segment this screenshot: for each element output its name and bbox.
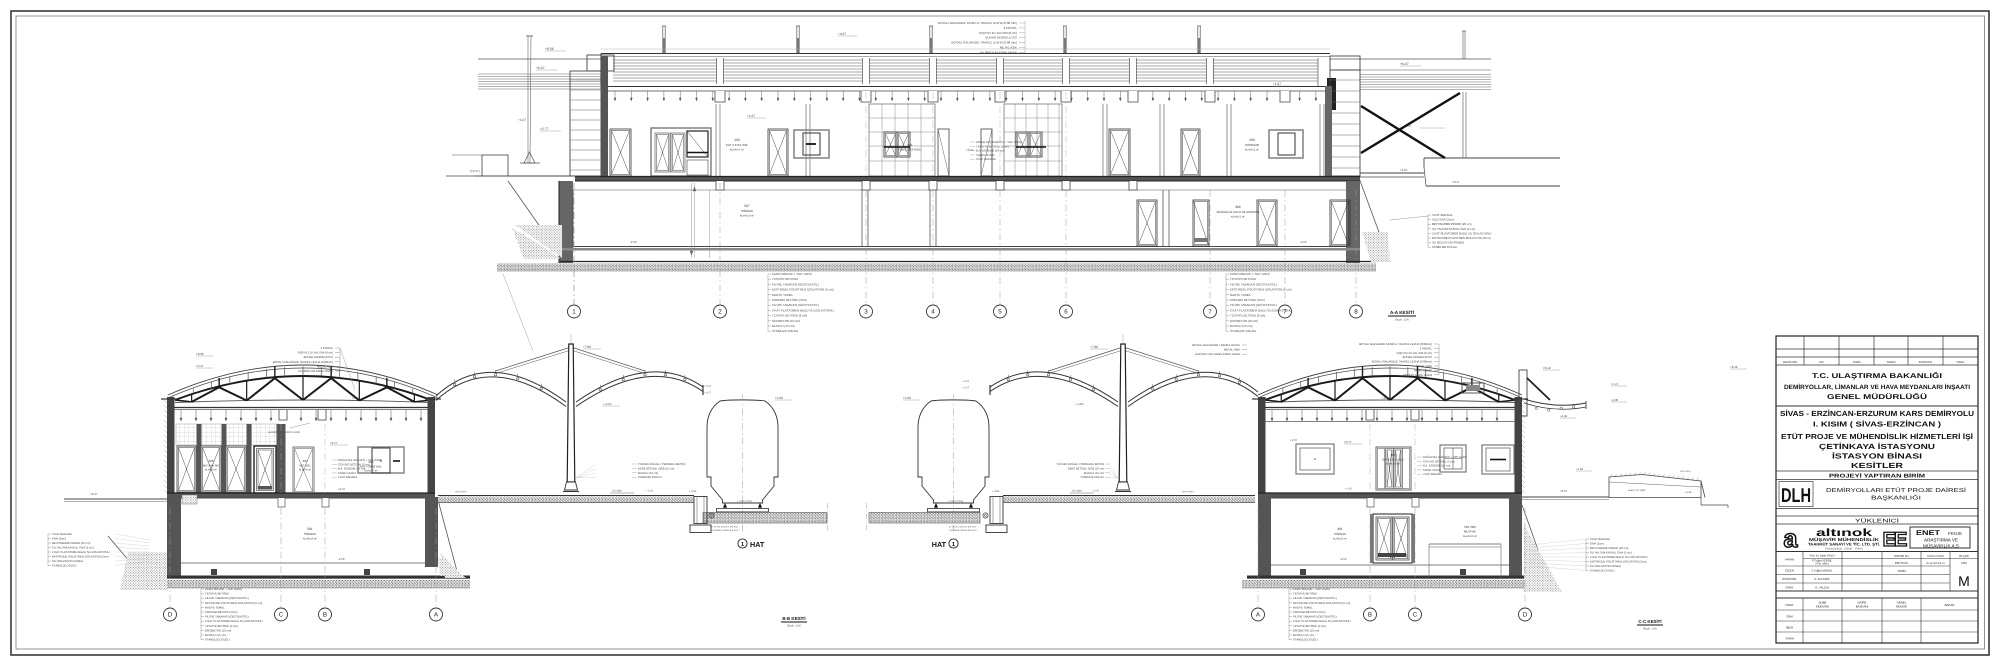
svg-text:C-C KESİTİ: C-C KESİTİ xyxy=(1638,619,1661,624)
svg-text:C: C xyxy=(1413,612,1418,619)
svg-text:ALAN:25 m²: ALAN:25 m² xyxy=(1333,538,1347,541)
svg-text:GROBETON (10 cm): GROBETON (10 cm) xyxy=(1293,628,1319,632)
svg-text:I. KISIM ( SİVAS-ERZİNCAN ): I. KISIM ( SİVAS-ERZİNCAN ) xyxy=(1813,420,1942,429)
svg-text:ALAN:57 m²: ALAN:57 m² xyxy=(364,470,378,473)
svg-text:FİLTRE TABAKASI (GEOTEKSTİL): FİLTRE TABAKASI (GEOTEKSTİL) xyxy=(772,303,819,307)
svg-text:7: 7 xyxy=(1208,309,1212,316)
svg-text:+1.67: +1.67 xyxy=(747,114,755,118)
svg-text:GROBETON (10 cm): GROBETON (10 cm) xyxy=(205,628,231,632)
svg-text:HAT: HAT xyxy=(750,540,765,549)
svg-text:M: M xyxy=(1958,573,1970,589)
svg-text:+ 0.86: + 0.86 xyxy=(992,490,1000,493)
svg-text:ÖLÇÜK: ÖLÇÜK xyxy=(1959,554,1969,558)
svg-text:T.C. ULAŞTIRMA BAKANLIĞI: T.C. ULAŞTIRMA BAKANLIĞI xyxy=(1812,371,1942,380)
svg-text:203: 203 xyxy=(734,138,740,142)
svg-text:%2 eğim: %2 eğim xyxy=(612,490,622,493)
svg-text:TESVİYE BETONU (5 cm): TESVİYE BETONU (5 cm) xyxy=(338,462,370,466)
svg-text:501: 501 xyxy=(307,527,313,531)
svg-text:TAVAN SIVASI: TAVAN SIVASI xyxy=(338,472,356,475)
svg-text:+7.80: +7.80 xyxy=(1090,345,1098,349)
svg-text:208: 208 xyxy=(1249,138,1255,142)
svg-text:YAPAN: YAPAN xyxy=(1785,558,1795,562)
svg-text:ASA PARA: ASA PARA xyxy=(1680,470,1691,473)
svg-text:STABİLİZE DOLGU: STABİLİZE DOLGU xyxy=(1080,475,1104,479)
svg-text:ANA PARA: ANA PARA xyxy=(1182,491,1194,494)
svg-text:METAL AŞIK: METAL AŞIK xyxy=(1224,348,1240,352)
svg-text:47 2KTAL BAZALT BALAST: 47 2KTAL BAZALT BALAST xyxy=(711,526,739,529)
svg-text:EKSTRÜDE POLİSTREN İZOLASYON: EKSTRÜDE POLİSTREN İZOLASYON (5cm) xyxy=(52,555,109,559)
svg-text:+0.67: +0.67 xyxy=(1560,489,1568,493)
svg-text:GİRİŞ CİK2 HOLÜ: GİRİŞ CİK2 HOLÜ xyxy=(1382,458,1404,462)
svg-text:BETONARME PERDE (25 cm): BETONARME PERDE (25 cm) xyxy=(1432,222,1472,226)
svg-text:+8.12: +8.12 xyxy=(1543,366,1551,370)
svg-text:PAFTA No: PAFTA No xyxy=(1895,561,1909,565)
svg-text:2 KAT PLASTOMER BAZLI SU İZOL: 2 KAT PLASTOMER BAZLI SU İZOLASYONU xyxy=(52,550,110,554)
svg-text:206: 206 xyxy=(208,459,213,463)
svg-text:+4.80: +4.80 xyxy=(903,396,911,400)
svg-text:E. ALTINOK: E. ALTINOK xyxy=(1814,577,1829,581)
svg-text:204: 204 xyxy=(1390,453,1395,457)
svg-text:+7.80: +7.80 xyxy=(583,345,591,349)
svg-text:+0.47: +0.47 xyxy=(966,148,974,152)
svg-text:EKSTRÜDE POLİSTREN İZOLASYON (: EKSTRÜDE POLİSTREN İZOLASYON (5cm) xyxy=(1432,236,1491,240)
svg-text:BOYALI GALVANİZE TRAPEZ LEVHA: BOYALI GALVANİZE TRAPEZ LEVHA (0.88mm) xyxy=(273,360,333,364)
svg-text:DERZ BETONU SIĞB (10 cm): DERZ BETONU SIĞB (10 cm) xyxy=(638,466,674,470)
svg-text:FİLTRE TABAKASI (GEOTEKSTİL): FİLTRE TABAKASI (GEOTEKSTİL) xyxy=(1230,303,1277,307)
svg-text:WC HOL: WC HOL xyxy=(299,464,311,468)
svg-text:KARO MOZAİK + YAP. HARÇ: KARO MOZAİK + YAP. HARÇ xyxy=(205,587,242,591)
svg-text:507: 507 xyxy=(744,204,750,208)
svg-text:RADYE TEMEL: RADYE TEMEL xyxy=(205,605,225,609)
svg-text:KARO MOZAİK + YAP. HARÇ: KARO MOZAİK + YAP. HARÇ xyxy=(1293,587,1330,591)
svg-text:BOYALI GALVANİZE TRAPEZ LEVHA: BOYALI GALVANİZE TRAPEZ LEVHA xyxy=(1192,343,1240,347)
svg-text:+6.47: +6.47 xyxy=(536,66,545,70)
svg-text:204: 204 xyxy=(302,459,307,463)
svg-text:MUTFAK: MUTFAK xyxy=(1464,530,1476,534)
svg-text:+4.67: +4.67 xyxy=(352,396,360,400)
svg-text:C: C xyxy=(279,612,284,619)
svg-text:ONAY: ONAY xyxy=(1957,360,1965,364)
svg-text:BUHAR DENGELEYİCİ: BUHAR DENGELEYİCİ xyxy=(1403,355,1433,359)
svg-text:TESVİYE BETONU (2 cm): TESVİYE BETONU (2 cm) xyxy=(1230,314,1265,318)
svg-text:BLOKAJ (15 cm): BLOKAJ (15 cm) xyxy=(1230,324,1253,328)
svg-text:+ 0.86: + 0.86 xyxy=(689,490,697,493)
svg-text:+0.47: +0.47 xyxy=(338,487,346,491)
svg-text:DOĞALTAŞ (GRANİT) + YAP. HARÇ: DOĞALTAŞ (GRANİT) + YAP. HARÇ xyxy=(1423,455,1467,459)
svg-text:SIĞINAK: SIĞINAK xyxy=(1334,532,1346,536)
svg-text:+4.67: +4.67 xyxy=(838,32,846,36)
svg-text:TARİH: TARİH xyxy=(1785,637,1794,641)
svg-text:METAL AŞIK: METAL AŞIK xyxy=(1416,364,1432,368)
svg-text:FİLTRE TABAKASI (GEOTEKSTİL): FİLTRE TABAKASI (GEOTEKSTİL) xyxy=(1230,282,1277,286)
svg-text:İŞİM: İŞİM xyxy=(1786,615,1793,619)
svg-text:ALAN:5 m²: ALAN:5 m² xyxy=(299,469,311,472)
svg-text:KORUMA BETONU (5cm): KORUMA BETONU (5cm) xyxy=(205,610,237,614)
svg-text:BETONARME PERDE (20 cm): BETONARME PERDE (20 cm) xyxy=(1590,546,1628,550)
svg-text:TESVİYE BETONU: TESVİYE BETONU xyxy=(1293,592,1317,596)
svg-text:+5.47: +5.47 xyxy=(196,364,204,368)
svg-text:BOYALI GALVANİZE KENETLİ TRAPE: BOYALI GALVANİZE KENETLİ TRAPEZ LEVHA (0… xyxy=(938,21,1017,25)
svg-text:EE: EE xyxy=(1883,529,1907,551)
svg-text:SU İZOLASYON PANELİ: SU İZOLASYON PANELİ xyxy=(1590,564,1621,568)
svg-text:+1.67: +1.67 xyxy=(1273,82,1281,86)
svg-text:3 KAT BADANA: 3 KAT BADANA xyxy=(1432,213,1453,217)
svg-text:ONAY: ONAY xyxy=(1785,586,1793,590)
svg-text:SU İZOLASYON PANELİ: SU İZOLASYON PANELİ xyxy=(52,559,83,563)
svg-text:DEMİRYOLLARI ETÜT PROJE DAİRES: DEMİRYOLLARI ETÜT PROJE DAİRESİ xyxy=(1826,487,1967,494)
svg-text:+5.47: +5.47 xyxy=(1611,382,1619,386)
svg-text:SIVA (2cm): SIVA (2cm) xyxy=(1590,542,1604,546)
svg-text:METAL AŞIK: METAL AŞIK xyxy=(317,364,333,368)
svg-text:+ 5.47: + 5.47 xyxy=(704,385,712,388)
svg-text:+8.36: +8.36 xyxy=(545,47,554,51)
svg-text:BUHAR DENGELEYİCİ: BUHAR DENGELEYİCİ xyxy=(304,355,334,359)
svg-text:D: D xyxy=(168,612,173,619)
svg-text:B: B xyxy=(323,612,327,619)
svg-text:TESVİYE BETONU: TESVİYE BETONU xyxy=(205,592,229,596)
svg-text:PROJEYİ YAPTIRAN BİRİM: PROJEYİ YAPTIRAN BİRİM xyxy=(1829,473,1926,480)
svg-text:TAVAN SIVASI: TAVAN SIVASI xyxy=(1423,469,1441,472)
svg-text:1: 1 xyxy=(572,309,576,316)
svg-text:+ 0.40: + 0.40 xyxy=(646,490,654,493)
svg-text:STABİLİZE DOLGU: STABİLİZE DOLGU xyxy=(1432,245,1457,249)
svg-text:KARO MOZAİK + YAP. HARÇ: KARO MOZAİK + YAP. HARÇ xyxy=(1230,272,1271,276)
svg-text:a: a xyxy=(1784,525,1799,553)
svg-text:-2.50: -2.50 xyxy=(338,557,345,561)
svg-text:Ölçek : 1/50: Ölçek : 1/50 xyxy=(787,624,801,628)
svg-text:GİRİŞ CİK3 HOLÜ: GİRİŞ CİK3 HOLÜ xyxy=(898,148,921,152)
svg-text:asans %7 eğim: asans %7 eğim xyxy=(1628,489,1646,492)
svg-text:GENEL MÜDÜRLÜĞÜ: GENEL MÜDÜRLÜĞÜ xyxy=(1827,392,1927,401)
svg-text:Ticaret Sicil No : 222441: Ticaret Sicil No : 222441 - 170001 xyxy=(1825,548,1863,551)
svg-text:-2.50: -2.50 xyxy=(1300,240,1307,244)
svg-text:DEMİRYOLLAR, LİMANLAR VE HAVA: DEMİRYOLLAR, LİMANLAR VE HAVA MEYDANLARI… xyxy=(1784,383,1970,391)
svg-text:Prof. Dr. Alper ÜNLÜ: Prof. Dr. Alper ÜNLÜ xyxy=(1810,554,1835,558)
svg-text:FİLTRE TABAKASI (GEOTEKSTİL): FİLTRE TABAKASI (GEOTEKSTİL) xyxy=(205,615,249,619)
svg-text:MÜDÜRLÜK HOLÜ VE KORİDOR: MÜDÜRLÜK HOLÜ VE KORİDOR xyxy=(1217,210,1260,214)
svg-text:B.A. DÖŞEME (16 cm): B.A. DÖŞEME (16 cm) xyxy=(338,467,365,471)
svg-text:ALAN:35 m²: ALAN:35 m² xyxy=(1463,535,1477,538)
svg-text:STABİLİZE DOLGU: STABİLİZE DOLGU xyxy=(52,564,77,568)
svg-text:ONAY: ONAY xyxy=(1785,603,1793,607)
svg-text:+2.77: +2.77 xyxy=(1344,440,1352,444)
svg-text:FİLTRE TABAKASI (GEOTEKSTİL): FİLTRE TABAKASI (GEOTEKSTİL) xyxy=(205,596,249,600)
svg-text:KESİTLER: KESİTLER xyxy=(1851,461,1904,470)
svg-text:3 KAT BADANA: 3 KAT BADANA xyxy=(338,476,357,479)
svg-text:DLH: DLH xyxy=(1781,485,1811,507)
svg-text:HAT: HAT xyxy=(932,540,947,549)
svg-text:+1.92: +1.92 xyxy=(1576,467,1584,471)
svg-text:TAŞIYICI 2U YALITIM (8 cm): TAŞIYICI 2U YALITIM (8 cm) xyxy=(978,31,1017,35)
svg-text:G. YALÇIN: G. YALÇIN xyxy=(1815,586,1829,590)
svg-text:+2.77: +2.77 xyxy=(540,127,549,131)
svg-text:TESVİYE BETONU: TESVİYE BETONU xyxy=(1230,277,1256,281)
svg-text:METAL AŞIK: METAL AŞIK xyxy=(1000,46,1017,50)
svg-text:İMZA: İMZA xyxy=(1786,626,1793,630)
svg-text:5: 5 xyxy=(998,309,1002,316)
svg-text:TESVİYE BETONU (2 cm): TESVİYE BETONU (2 cm) xyxy=(205,624,238,628)
svg-text:YÜKLENİCİ: YÜKLENİCİ xyxy=(1855,518,1899,525)
svg-text:İSTASYON BİNASI: İSTASYON BİNASI xyxy=(1832,452,1922,461)
svg-text:+1.67: +1.67 xyxy=(1290,438,1298,442)
svg-text:KORUMA BETONU (5cm): KORUMA BETONU (5cm) xyxy=(772,298,807,302)
svg-text:MÜDÜRÜ: MÜDÜRÜ xyxy=(1816,605,1829,609)
svg-text:304 /303: 304 /303 xyxy=(1464,525,1476,529)
svg-text:B: B xyxy=(380,459,382,463)
svg-text:+ 6.27: + 6.27 xyxy=(962,387,970,390)
svg-text:ALAN:103 m²: ALAN:103 m² xyxy=(1386,463,1401,466)
svg-text:STABİLİZE DOLGU: STABİLİZE DOLGU xyxy=(205,638,230,642)
svg-text:DERZ BETONU SIĞB (10 cm): DERZ BETONU SIĞB (10 cm) xyxy=(1068,466,1104,470)
svg-text:3 KAT BADANA: 3 KAT BADANA xyxy=(52,532,72,536)
svg-text:YIKANMIŞ TABAN BALASTI: YIKANMIŞ TABAN BALASTI xyxy=(949,529,977,532)
svg-text:ALÇI SIVA (2cm): ALÇI SIVA (2cm) xyxy=(1432,218,1454,222)
svg-text:STABİLİZE DOLGU: STABİLİZE DOLGU xyxy=(1230,329,1256,333)
svg-text:TESVİYE BETONU (5 cm): TESVİYE BETONU (5 cm) xyxy=(1423,459,1455,463)
svg-text:KORUMA BETONU (5cm): KORUMA BETONU (5cm) xyxy=(1230,298,1265,302)
svg-text:BLOKAJ (15 cm): BLOKAJ (15 cm) xyxy=(1293,633,1314,637)
svg-text:ALEVSIZI VM LAMEL ASMA TAVAN: ALEVSIZI VM LAMEL ASMA TAVAN xyxy=(1195,352,1240,356)
svg-text:SİVAS - ERZİNCAN-ERZURUM KARS: SİVAS - ERZİNCAN-ERZURUM KARS DEMİRYOLU xyxy=(1780,409,1974,418)
svg-text:4: 4 xyxy=(931,309,935,316)
svg-text:2 KAT PLASTOMER BAZLI SU İZOL: 2 KAT PLASTOMER BAZLI SU İZOLASYONU xyxy=(205,619,263,623)
svg-text:+ 0.40: + 0.40 xyxy=(1092,490,1100,493)
svg-text:± 0.00 (Y.Z.K): ± 0.00 (Y.Z.K) xyxy=(948,500,963,503)
svg-text:+8.26: +8.26 xyxy=(196,352,204,356)
svg-text:MÜŞAVİR MÜHENDİSLİK: MÜŞAVİR MÜHENDİSLİK xyxy=(1809,537,1879,542)
svg-text:KORUMA BETONU (5cm): KORUMA BETONU (5cm) xyxy=(1293,610,1325,614)
svg-text:SU YALITIM KATKILI SIVA (2 cm: SU YALITIM KATKILI SIVA (2 cm) xyxy=(52,546,94,550)
svg-text:2 PROFİL: 2 PROFİL xyxy=(321,346,334,350)
svg-text:(YÜK. MİM.): (YÜK. MİM.) xyxy=(1815,562,1829,566)
svg-text:-2.50: -2.50 xyxy=(1340,557,1347,561)
svg-text:STABİLİZE DOLGU: STABİLİZE DOLGU xyxy=(1590,569,1615,573)
svg-text:TAŞIYICI 2U YALITIM (8 cm): TAŞIYICI 2U YALITIM (8 cm) xyxy=(297,351,333,355)
svg-text:+4.67: +4.67 xyxy=(1382,396,1390,400)
svg-text:BUHAR DENGELEYİCİ: BUHAR DENGELEYİCİ xyxy=(985,36,1017,40)
svg-text:FİLTRE TABAKASI (GEOTEKSTİL): FİLTRE TABAKASI (GEOTEKSTİL) xyxy=(772,282,819,286)
svg-text:ALÜMİNYUM ASMA TAVAN: ALÜMİNYUM ASMA TAVAN xyxy=(980,50,1017,54)
svg-text:ALAN:52 m²: ALAN:52 m² xyxy=(1231,216,1245,219)
svg-text:3 KAT BADANA: 3 KAT BADANA xyxy=(976,157,996,161)
svg-text:+ 4.810: + 4.810 xyxy=(1075,403,1084,406)
svg-text:ALAN:57 m²: ALAN:57 m² xyxy=(730,149,744,152)
svg-text:SU İZOLASYON PANELİ: SU İZOLASYON PANELİ xyxy=(1432,241,1464,245)
svg-text:60-Çİ-İST-KS-01: 60-Çİ-İST-KS-01 xyxy=(1926,561,1945,565)
svg-text:F.Tuğba VERDİL: F.Tuğba VERDİL xyxy=(1812,569,1833,573)
svg-text:GROBETON (10 cm): GROBETON (10 cm) xyxy=(1230,319,1258,323)
svg-text:TESVİYE BETONU: TESVİYE BETONU xyxy=(772,277,798,281)
svg-text:BAKAN: BAKAN xyxy=(1945,603,1955,607)
svg-text:+8.12: +8.12 xyxy=(1730,365,1738,369)
svg-text:301: 301 xyxy=(1337,527,1343,531)
svg-text:ÇETİNKAYA İSTASYONU: ÇETİNKAYA İSTASYONU xyxy=(1819,442,1935,451)
svg-text:MÜDÜR: MÜDÜR xyxy=(1896,605,1907,609)
svg-text:TAAHHÜT SANAYİ VE TİC. LTD. ŞT: TAAHHÜT SANAYİ VE TİC. LTD. ŞTİ. xyxy=(1808,542,1880,547)
svg-text:TARİH: TARİH xyxy=(1897,569,1905,573)
svg-text:2009/LD1/0520: 2009/LD1/0520 xyxy=(1927,555,1945,558)
svg-text:+4.72: +4.72 xyxy=(1404,124,1412,128)
svg-text:STABİLİZE DOLGU: STABİLİZE DOLGU xyxy=(1293,638,1318,642)
svg-text:BLOKAJ (15 cm): BLOKAJ (15 cm) xyxy=(638,472,658,475)
svg-text:KARO MOZAİK + YAP. HARÇ: KARO MOZAİK + YAP. HARÇ xyxy=(772,272,813,276)
svg-text:EKSTRÜDE POLİSTREN İZOLASYON: EKSTRÜDE POLİSTREN İZOLASYON (5 cm) xyxy=(772,288,834,292)
svg-text:B: B xyxy=(1314,457,1316,461)
svg-text:ALAN:25 m²: ALAN:25 m² xyxy=(303,538,317,541)
svg-text:BOYALI GALVANİZE TRAPEZ LEVHA: BOYALI GALVANİZE TRAPEZ LEVHA (0.88 mm) xyxy=(952,41,1017,45)
svg-text:RADYE TEMEL: RADYE TEMEL xyxy=(772,293,793,297)
svg-text:KORİDOR: KORİDOR xyxy=(1245,143,1260,147)
svg-text:FİLTRE TABAKASI (GEOTEKSTİL): FİLTRE TABAKASI (GEOTEKSTİL) xyxy=(1293,615,1337,619)
svg-text:RADYE TEMEL: RADYE TEMEL xyxy=(1293,605,1313,609)
svg-text:YAPAN: YAPAN xyxy=(1886,360,1895,364)
svg-text:47 2KTAL BAZALT BALAST: 47 2KTAL BAZALT BALAST xyxy=(949,526,977,529)
svg-text:YÜKSEK DOĞALI / PERDAHLI BETON: YÜKSEK DOĞALI / PERDAHLI BETON xyxy=(638,462,686,466)
svg-text:+0.17: +0.17 xyxy=(90,492,98,496)
svg-text:8: 8 xyxy=(1354,309,1358,316)
svg-text:BAŞKANI: BAŞKANI xyxy=(1856,605,1869,609)
svg-text:ANA PARA: ANA PARA xyxy=(455,491,467,494)
svg-text:+4.49: +4.49 xyxy=(1560,414,1568,418)
svg-text:3: 3 xyxy=(864,309,868,316)
svg-text:+6.47: +6.47 xyxy=(1400,62,1409,66)
svg-text:YÜKSEK DOĞALI / PERDAHLI BETON: YÜKSEK DOĞALI / PERDAHLI BETON xyxy=(1057,462,1105,466)
svg-text:YIKANMIŞ TABAN BALASTI: YIKANMIŞ TABAN BALASTI xyxy=(711,529,739,532)
svg-text:3 KAT BADANA: 3 KAT BADANA xyxy=(1423,473,1442,476)
svg-text:SU YALITIM KATKILI SIVA (2 cm): SU YALITIM KATKILI SIVA (2 cm) xyxy=(1590,551,1632,555)
svg-text:EKSTRÜDE POLİSTREN İZOLASYON: EKSTRÜDE POLİSTREN İZOLASYON (5 cm) xyxy=(1293,601,1350,605)
svg-text:SU YALITIM KATKILI SIVA (2 cm: SU YALITIM KATKILI SIVA (2 cm) xyxy=(1432,227,1475,231)
svg-text:+4.80: +4.80 xyxy=(1611,398,1619,402)
svg-text:2: 2 xyxy=(718,309,722,316)
svg-text:2 KAT PLASTOMER BAZLI SU İZOL: 2 KAT PLASTOMER BAZLI SU İZOLASYONU xyxy=(1432,231,1491,235)
svg-text:TESVİYE BETONU (2 cm): TESVİYE BETONU (2 cm) xyxy=(1293,624,1326,628)
svg-text:BOYALI GALVANİZE TRAPEZ LEVHA: BOYALI GALVANİZE TRAPEZ LEVHA (0.88mm) xyxy=(1372,360,1432,364)
svg-text:201: 201 xyxy=(907,143,912,147)
svg-text:ALAN:55 m²: ALAN:55 m² xyxy=(740,215,754,218)
svg-text:ALÜMİNYUM ASMA TAVAN: ALÜMİNYUM ASMA TAVAN xyxy=(298,369,333,373)
svg-text:2 PROFİL: 2 PROFİL xyxy=(1004,26,1018,30)
svg-text:Ölçek : 1/50: Ölçek : 1/50 xyxy=(1395,318,1409,322)
svg-text:+1.67: +1.67 xyxy=(518,118,526,122)
svg-text:KAT II KITA HOL: KAT II KITA HOL xyxy=(726,143,749,147)
svg-text:+2.48: +2.48 xyxy=(1685,491,1692,494)
svg-text:BETONARME PERDE (25 cm): BETONARME PERDE (25 cm) xyxy=(52,541,90,545)
svg-text:TESVİYE BETONU (2 cm): TESVİYE BETONU (2 cm) xyxy=(772,314,807,318)
svg-text:PROJE No: PROJE No xyxy=(1894,554,1909,558)
svg-text:+1.67: +1.67 xyxy=(1400,168,1408,172)
svg-text:+0.17: +0.17 xyxy=(1452,180,1460,184)
svg-text:ENET: ENET xyxy=(1916,530,1941,537)
svg-text:RADYE TEMEL: RADYE TEMEL xyxy=(1230,293,1251,297)
svg-text:GROBETON (10 cm): GROBETON (10 cm) xyxy=(772,319,800,323)
svg-text:2 KAT PLASTOMER BAZLI SU İZOL: 2 KAT PLASTOMER BAZLI SU İZOLASYONU xyxy=(772,308,834,312)
svg-text:306: 306 xyxy=(1235,205,1241,209)
svg-text:BOYALI GALVANİZE KENETLİ TRAPE: BOYALI GALVANİZE KENETLİ TRAPEZ LEVHA (0… xyxy=(1359,342,1432,346)
svg-text:TAVAN ASKISI: TAVAN ASKISI xyxy=(1414,368,1433,372)
svg-text:2 KAT PLASTOMER BAZLI SU İZOL: 2 KAT PLASTOMER BAZLI SU İZOLASYONU xyxy=(1230,308,1292,312)
svg-text:SIVA (2cm): SIVA (2cm) xyxy=(52,537,66,541)
svg-text:EKSTRÜDE POLİSTREN İZOLASYON: EKSTRÜDE POLİSTREN İZOLASYON (5 cm) xyxy=(1230,288,1292,292)
svg-text:%2 eğim: %2 eğim xyxy=(1072,490,1082,493)
svg-text:STABİLİZE DOLGU: STABİLİZE DOLGU xyxy=(638,475,662,479)
svg-text:PROJE: PROJE xyxy=(1948,531,1962,536)
svg-text:2 KAT PLASTOMER BAZLI SU İZOL: 2 KAT PLASTOMER BAZLI SU İZOLASYONU xyxy=(1590,555,1648,559)
svg-text:D: D xyxy=(1523,612,1528,619)
svg-text:DOĞALTAŞ (GRANİT) + YAP. HARÇ: DOĞALTAŞ (GRANİT) + YAP. HARÇ xyxy=(338,458,382,462)
svg-text:MUTFAK MC: MUTFAK MC xyxy=(203,464,219,468)
svg-text:REVİZYON: REVİZYON xyxy=(1783,360,1797,364)
svg-text:TAŞIYICI ASMA TAVAN: TAŞIYICI ASMA TAVAN xyxy=(1403,373,1432,377)
svg-text:+ 1.87: + 1.87 xyxy=(1345,488,1353,491)
svg-text:-2.50: -2.50 xyxy=(630,240,637,244)
svg-text:ETÜT PROJE VE MÜHENDİSLİK: ETÜT PROJE VE MÜHENDİSLİK HİZMETLERİ İŞİ xyxy=(1781,432,1973,441)
svg-text:A-A KESİTİ: A-A KESİTİ xyxy=(1390,310,1414,315)
svg-text:BLOKAJ (15 cm): BLOKAJ (15 cm) xyxy=(772,324,795,328)
svg-text:SIĞINAK: SIĞINAK xyxy=(741,209,753,213)
svg-text:± 0.00 (Y.Z.K): ± 0.00 (Y.Z.K) xyxy=(737,500,752,503)
svg-text:BLOKAJ (15 cm): BLOKAJ (15 cm) xyxy=(1084,472,1104,475)
svg-text:B-B KESİTİ: B-B KESİTİ xyxy=(782,616,805,621)
svg-text:SIĞINAK: SIĞINAK xyxy=(304,532,316,536)
svg-text:FİLTRE TABAKASI (GEOTEKSTİL): FİLTRE TABAKASI (GEOTEKSTİL) xyxy=(1293,596,1337,600)
svg-text:EKSTRÜDE POLİSTREN İZOLASYON: EKSTRÜDE POLİSTREN İZOLASYON (5 cm) xyxy=(205,601,262,605)
svg-text:TARİH: TARİH xyxy=(1852,360,1860,364)
svg-text:STABİLİZE DOLGU: STABİLİZE DOLGU xyxy=(772,329,798,333)
svg-text:MÜŞAVİRLİK A.Ş: MÜŞAVİRLİK A.Ş xyxy=(1923,544,1959,549)
svg-text:ÇİZEN: ÇİZEN xyxy=(1785,569,1794,573)
svg-text:2 KAT PLASTOMER BAZLI SU İZOL: 2 KAT PLASTOMER BAZLI SU İZOLASYONU xyxy=(1293,619,1351,623)
svg-text:+ 6.27: + 6.27 xyxy=(704,392,712,395)
svg-text:(+0.17): (+0.17) xyxy=(470,169,480,173)
svg-text:TAŞIYICI 2U YALITIM (8 cm): TAŞIYICI 2U YALITIM (8 cm) xyxy=(1396,351,1432,355)
svg-text:1/50: 1/50 xyxy=(1961,561,1967,565)
svg-text:B: B xyxy=(1368,612,1372,619)
svg-text:KONTROL: KONTROL xyxy=(1919,360,1933,364)
svg-text:+ 5.47: + 5.47 xyxy=(962,380,970,383)
svg-text:ALAN:52 m²: ALAN:52 m² xyxy=(1245,149,1259,152)
svg-text:KONTROL: KONTROL xyxy=(1782,577,1797,581)
svg-text:ALÜMİNYUM ASMA TAVAN: ALÜMİNYUM ASMA TAVAN xyxy=(268,430,300,434)
svg-text:EKSTRÜDE POLİSTREN İZOLASYON: EKSTRÜDE POLİSTREN İZOLASYON (5cm) xyxy=(1590,560,1647,564)
svg-text:+4.80: +4.80 xyxy=(775,396,783,400)
svg-text:ARAŞTIRMA VE: ARAŞTIRMA VE xyxy=(1924,538,1958,543)
svg-text:ALAN:5 m²: ALAN:5 m² xyxy=(205,469,217,472)
svg-text:BAŞKANLIĞI: BAŞKANLIĞI xyxy=(1871,495,1922,502)
svg-text:3 KAT BADANA: 3 KAT BADANA xyxy=(1590,537,1610,541)
svg-text:6: 6 xyxy=(1064,309,1068,316)
svg-text:+ 4.810: + 4.810 xyxy=(603,403,612,406)
svg-text:Ölçek : 1/50: Ölçek : 1/50 xyxy=(1643,627,1657,631)
svg-text:2 PROFİL: 2 PROFİL xyxy=(1420,346,1433,350)
svg-text:+2.77: +2.77 xyxy=(330,441,338,445)
svg-text:B.A. DÖŞEME (16 cm): B.A. DÖŞEME (16 cm) xyxy=(1423,464,1450,468)
svg-text:BLOKAJ (15 cm): BLOKAJ (15 cm) xyxy=(205,633,226,637)
